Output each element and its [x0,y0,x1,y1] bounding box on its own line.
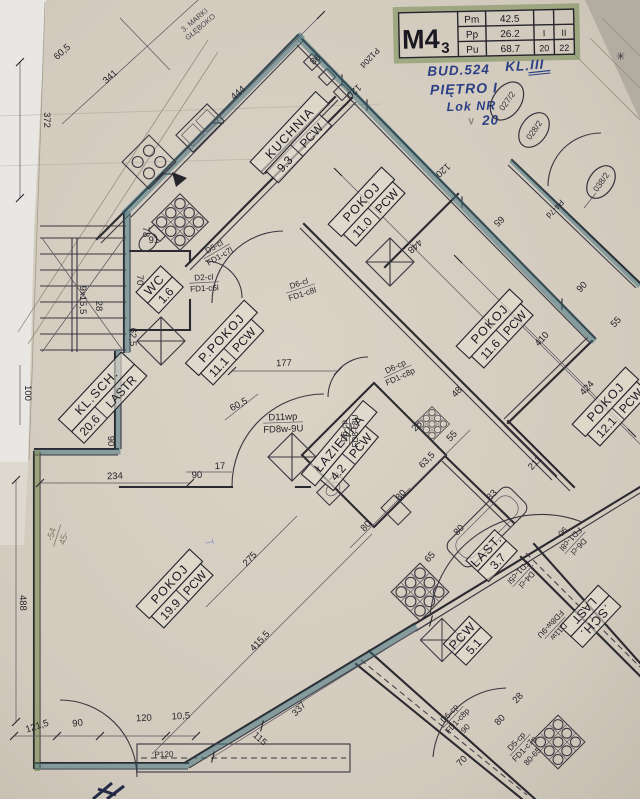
dim-text: 100 [22,385,33,401]
dim-text: 17 [214,461,225,472]
window-label: P120 [154,750,174,760]
svg-text:D11wp: D11wp [268,412,297,424]
unit-number: 20 [481,112,500,128]
floorplan-drawing: KUCHNIA 9.3 PCW POKOJ 11.0 PCW POKOJ 11.… [0,0,640,799]
dim-text: 488 [17,595,29,611]
dim-text: 372 [41,112,52,128]
star-mark: ✳ [616,51,625,63]
dim-text: 120 [136,713,152,725]
dim-text: 177 [276,358,292,370]
staircase-number: III [530,57,545,72]
dim-text: 234 [107,471,123,483]
dim-text: 90 [191,470,202,481]
tb-value: 68.7 [501,44,521,55]
dim-text: 10,5 [171,711,190,723]
dim-text: 78 [140,227,151,238]
dim-text: 9x15,5 [77,286,88,315]
tb-value: 42.5 [500,14,520,25]
tb-col2: II [561,28,566,38]
svg-text:FD8w-9U: FD8w-9U [263,423,304,435]
tb-key: Pp [466,30,479,41]
building-note: BUD.524 [427,62,490,79]
dim-text: 28 [93,301,104,312]
svg-text:FD8-c8U: FD8-c8U [351,415,360,448]
tb-col1: 20 [539,43,549,53]
check-mark: ∨ [467,115,475,127]
tb-key: Pu [466,45,478,56]
floorplan-photo: KUCHNIA 9.3 PCW POKOJ 11.0 PCW POKOJ 11.… [0,0,640,799]
tb-value: 26.2 [500,29,520,40]
dim-text: 70 [134,275,145,286]
tb-col2: 22 [559,43,569,53]
svg-text:D2-cl: D2-cl [194,273,214,283]
floor-note: PIĘTRO I [430,79,499,97]
apartment-type: M4 [402,24,440,55]
dim-text: 90 [72,717,84,729]
apartment-type-sub: 3 [441,40,450,57]
dim-text: 90 [105,436,116,447]
tb-key: Pm [464,15,479,26]
svg-text:D6-cp: D6-cp [340,420,349,442]
svg-text:FD1-c6l: FD1-c6l [190,283,219,293]
staircase-note: KL. [505,58,530,74]
tb-col1: I [543,28,546,38]
dim-text: 62,5 [127,328,138,347]
